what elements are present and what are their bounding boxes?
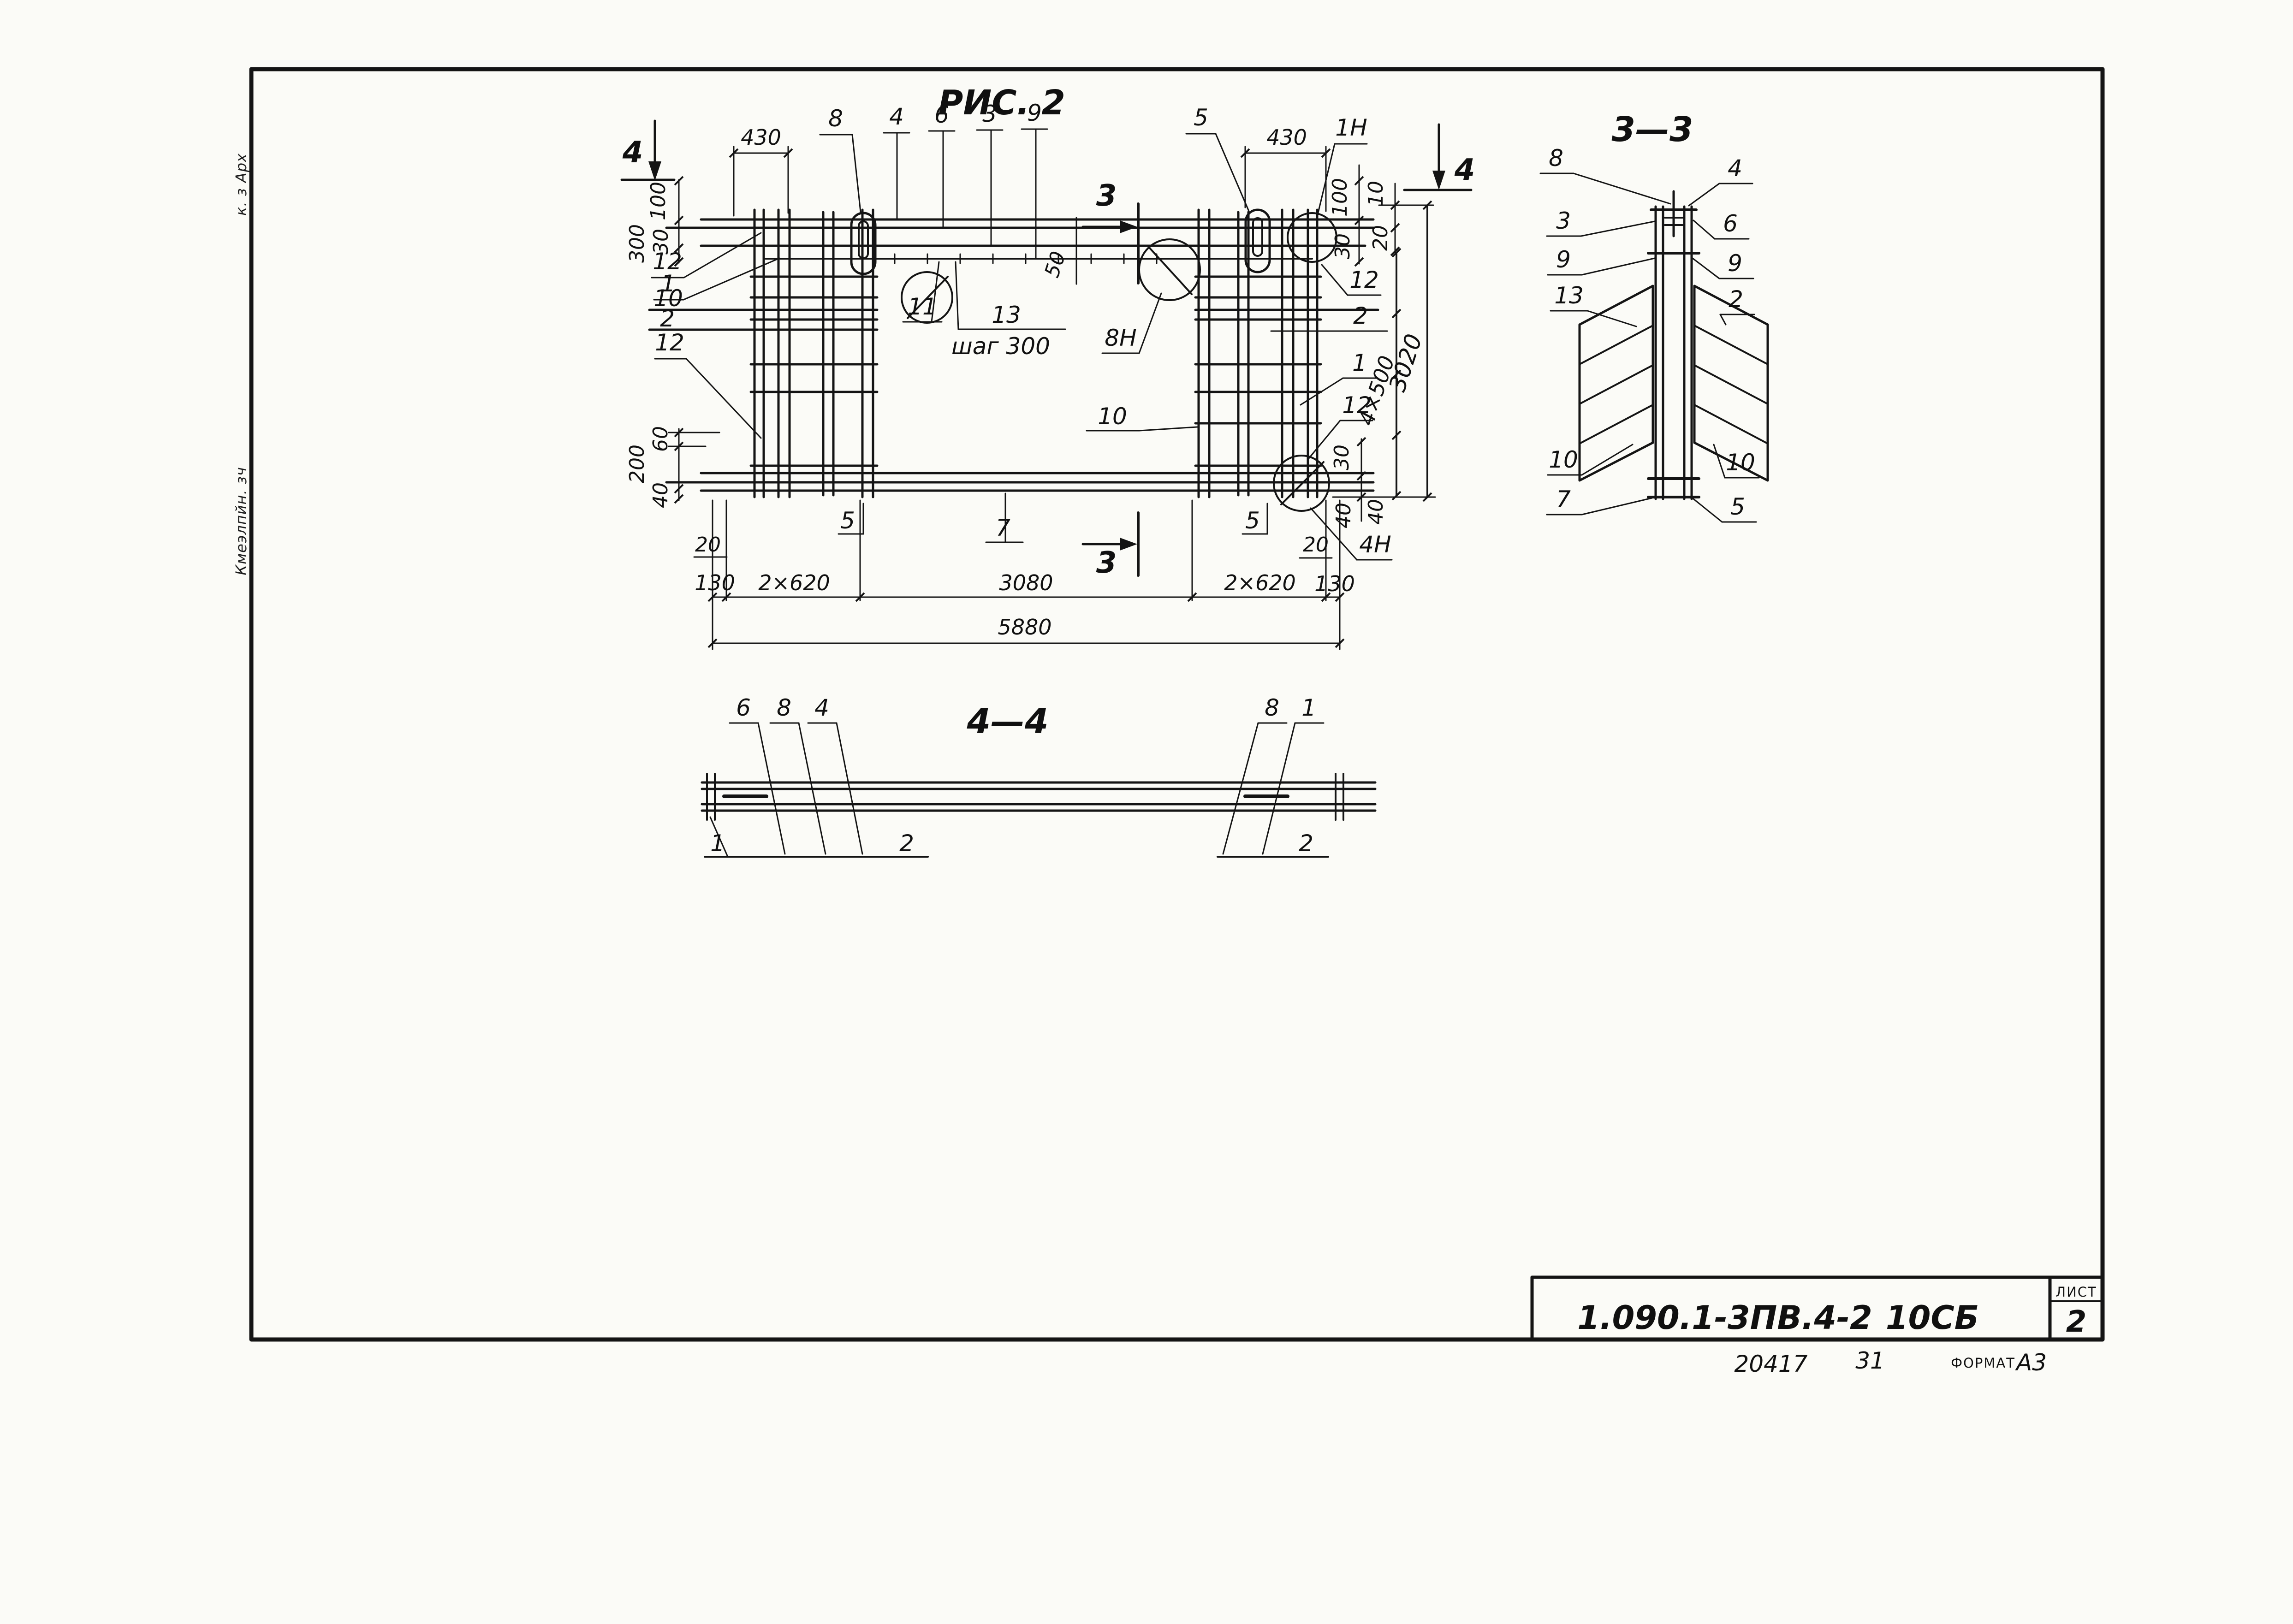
callout-11: 11 [903,262,942,322]
callout-4-top-text: 4 [889,103,904,130]
s44-callout-8-right: 8 [1265,694,1279,721]
callout-6-top-text: 6 [934,101,949,128]
callout-4n-text: 4Н [1359,531,1391,558]
s33-callout-10-right: 10 [1726,449,1755,476]
s44-callout-4: 4 [814,694,829,721]
dim-30-right-bottom-text: 30 [1330,445,1354,470]
sheet-frame [251,69,2103,1340]
section-mark-3-top: 3 [1083,179,1138,283]
section-3-label-bottom: 3 [1096,546,1117,580]
s33-callout-7: 7 [1556,486,1571,513]
step-note-text: шаг 300 [951,333,1050,360]
callout-1n-text: 1Н [1335,114,1367,141]
format-value: А3 [2015,1349,2047,1376]
dim-40-right-b-text: 40 [1364,499,1388,525]
callout-10-mid: 10 [1087,403,1197,431]
dim-50-text: 50 [1040,249,1070,280]
s33-callout-9-left: 9 [1556,246,1571,273]
callout-5-top: 5 [1186,104,1249,211]
callout-12-right-a-text: 12 [1349,267,1379,293]
blueprint-sheet: к. з Арх Кмеэлпйн. зч 1.090.1-3ПВ.4-2 10… [0,0,2293,1624]
s33-callout-10-left: 10 [1549,446,1578,473]
dim-300-left-text: 300 [625,224,649,263]
s33-callout-13: 13 [1554,282,1584,309]
callout-3-top-text: 3 [982,101,997,127]
callout-5-bottom-right: 5 [1242,504,1267,534]
callout-2-right: 2 [1271,302,1387,331]
stamp-text-upper: к. з Арх [232,153,250,216]
figure-title: РИС. 2 [938,83,1065,123]
callout-12-left-b-text: 12 [655,329,684,356]
section-4-4-title: 4—4 [967,702,1049,741]
section-3-3-title: 3—3 [1612,110,1693,149]
s33-callout-8: 8 [1549,145,1563,172]
s33-callout-9-right: 9 [1728,250,1742,277]
dim-40-left-text: 40 [649,482,672,508]
callout-9-top: 9 [1022,100,1047,258]
callout-2-left-text: 2 [660,305,675,332]
title-block: 1.090.1-3ПВ.4-2 10СБ ЛИСТ 2 [1532,1277,2103,1339]
section-mark-4-right: 4 [1404,124,1475,190]
s44-callout-6: 6 [736,694,751,721]
dim-3080-text: 3080 [999,570,1053,595]
section-4-label-right: 4 [1454,153,1475,187]
callout-10-mid-text: 10 [1098,403,1127,430]
drawing-canvas: к. з Арх Кмеэлпйн. зч 1.090.1-3ПВ.4-2 10… [0,0,2293,1624]
callout-13: 13 шаг 300 [951,262,1065,360]
format-label: ФОРМАТ [1951,1355,2015,1371]
callout-12-left-b: 12 [655,329,761,438]
dim-60-text: 60 [649,426,672,452]
document-code: 1.090.1-3ПВ.4-2 [1577,1299,1872,1337]
s33-callout-6: 6 [1723,210,1738,237]
section-3-3: 3—3 8 3 9 13 10 7 4 6 9 [1540,110,1768,522]
section-4-4: 4—4 6 8 4 8 1 1 2 2 [702,694,1375,857]
plan-bottom-chord [666,473,1373,491]
note-extra: 31 [1855,1347,1885,1374]
callout-13-text: 13 [992,302,1021,328]
dim-200-text: 200 [625,445,649,483]
s44-callout-2-left: 2 [899,830,914,857]
s33-callout-5: 5 [1730,493,1745,520]
callout-2-right-text: 2 [1353,302,1368,329]
dim-430-right: 430 [1241,125,1330,211]
section-mark-3-bottom: 3 [1083,513,1138,580]
dim-20-left-text: 20 [695,533,721,557]
dim-5880-text: 5880 [998,615,1051,640]
note-number: 20417 [1734,1351,1807,1377]
dims-right-top: 100 10 20 30 [1328,165,1433,266]
s44-callout-2-right: 2 [1299,830,1313,857]
stamp-text-lower: Кмеэлпйн. зч [232,467,250,575]
dim-430-left-text: 430 [741,125,781,150]
callout-7-bottom: 7 [986,493,1023,542]
node-circle-mid [1139,239,1200,300]
s44-callout-1-top: 1 [1301,694,1316,721]
callout-5-bottom-right-text: 5 [1245,507,1260,534]
dim-2x620-right-text: 2×620 [1224,570,1296,595]
dim-20-right-text: 20 [1303,533,1329,557]
margin-stamp-lower: Кмеэлпйн. зч [232,467,250,575]
s44-callout-1-bottom: 1 [710,830,725,857]
s33-callout-2: 2 [1729,286,1743,313]
callout-5-bottom-left-text: 5 [840,507,855,534]
dim-130-right-text: 130 [1314,571,1355,596]
dim-30-right-top-text: 30 [1331,233,1354,259]
dim-20-right-top-text: 20 [1369,225,1392,251]
dims-left-bottom: 60 200 40 [625,426,719,508]
assembly-code: 10СБ [1886,1299,1979,1337]
margin-stamp-upper: к. з Арх [232,153,250,216]
callout-8-top: 8 [820,105,861,212]
callout-4-top: 4 [884,103,909,219]
callout-8-top-text: 8 [828,105,843,132]
section-mark-4-left: 4 [622,121,674,181]
s33-callout-3: 3 [1556,207,1571,234]
dim-2x620-left-text: 2×620 [758,570,830,595]
s44-callout-8-left: 8 [777,694,791,721]
section-3-label-top: 3 [1096,179,1117,213]
callout-8n: 8Н [1102,293,1161,353]
dim-10-right-text: 10 [1364,181,1388,207]
callout-8n-text: 8Н [1105,325,1136,351]
dim-40-right-a-text: 40 [1332,503,1355,528]
dim-100-right-text: 100 [1328,178,1352,217]
dim-100-left-text: 100 [647,182,670,220]
callout-9-top-text: 9 [1027,100,1042,126]
plan-top-chord [666,219,1373,263]
dim-430-left: 430 [730,125,792,216]
callout-1-right-text: 1 [1352,350,1367,376]
section-4-label-left: 4 [622,136,643,170]
dim-130-left-text: 130 [695,570,735,595]
sheet-label: ЛИСТ [2055,1284,2097,1300]
below-frame-notes: 20417 31 ФОРМАТ А3 [1734,1347,2047,1377]
sheet-number: 2 [2066,1305,2087,1339]
s33-callout-4: 4 [1728,155,1742,182]
callout-12-right-a: 12 [1322,265,1381,295]
callout-5-top-text: 5 [1194,104,1208,131]
dim-430-right-text: 430 [1266,125,1307,150]
callout-7-bottom-text: 7 [996,515,1010,541]
